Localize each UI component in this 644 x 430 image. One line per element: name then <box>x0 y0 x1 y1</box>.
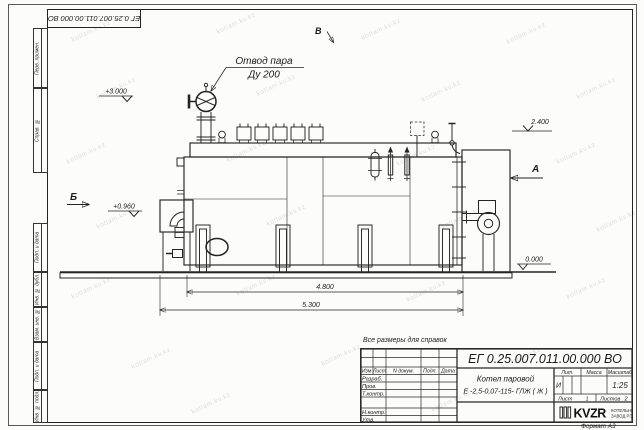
product-name-line1: Котел паровой <box>477 375 535 384</box>
scale-header: Масштаб <box>608 370 633 376</box>
dimensions: 4.800 5.300 <box>160 275 463 316</box>
elevation-ground: 0.000 <box>525 257 543 264</box>
level-instruments <box>368 147 410 181</box>
valve-box <box>255 124 269 144</box>
row-nkontr: Н.контр. <box>362 410 386 416</box>
lit-value: И <box>556 383 562 390</box>
side-cell-podp-data-1: Подп. и дата <box>33 223 48 272</box>
elevation-burner: +0.960 <box>113 204 135 211</box>
title-block: Изм Лист N докум. Подп. Дата Разраб. Про… <box>360 348 633 423</box>
elevation-mid: 2.400 <box>530 119 549 126</box>
product-name-line2: Е -2,5-0,07-115- ГЛЖ ( Ж ) <box>463 389 547 396</box>
rotated-doc-number: ЕГ 0.25.007.011.00.000 ВО <box>48 14 140 23</box>
front-wall-fittings <box>166 158 184 258</box>
row-razrab: Разраб. <box>362 376 382 382</box>
dim-body-length: 4.800 <box>316 284 334 291</box>
logo-text: KVZR <box>574 407 607 421</box>
sheet-label: Лист <box>557 396 573 402</box>
side-cell-perv-primen: Перв. примен. <box>33 28 48 88</box>
dim-overall-length: 5.300 <box>302 302 320 309</box>
burner-box <box>160 200 193 271</box>
elevation-top: +3.000 <box>105 89 127 96</box>
view-label-b: Б <box>70 192 77 203</box>
boiler-body <box>184 143 462 265</box>
row-prov: Пров. <box>362 384 377 390</box>
format-label: Формат А3 <box>581 423 615 430</box>
sheets-label: Листов <box>599 396 620 402</box>
elevation-marks: +3.000 2.400 +0.960 0.000 <box>99 89 552 270</box>
valve-box <box>273 124 287 144</box>
col-podp: Подп. <box>423 369 437 375</box>
logo-subtext-1: КОТЕЛЬНЫЙ <box>611 408 633 413</box>
mass-header: Масса <box>586 370 601 376</box>
top-right-fittings <box>411 122 461 158</box>
valve-box <box>291 124 305 144</box>
col-izm: Изм <box>362 369 372 375</box>
callout-line1: Отвод пара <box>235 56 293 67</box>
valve-box <box>309 124 323 144</box>
drawing-sheet: kotlam.kv.kzkotlam.kv.kzkotlam.kv.kzkotl… <box>0 0 644 430</box>
side-cell-podp-data-2: Подп. и дата <box>33 342 48 390</box>
side-cell-vzam-inv: Взам. инв. № <box>33 307 48 342</box>
valve-box <box>237 124 251 144</box>
doc-number: ЕГ 0.25.007.011.00.000 ВО <box>468 352 622 366</box>
side-cell-inv-dubl: Инв. № дубл. <box>33 272 48 307</box>
view-label-v: В <box>315 26 322 36</box>
side-cell-sprav-no: Справ. № <box>33 88 48 173</box>
row-tkontr: Т.контр. <box>362 391 385 397</box>
scale-value: 1:25 <box>612 381 628 390</box>
pump-unit <box>462 201 500 272</box>
company-logo: KVZR КОТЕЛЬНЫЙ ЗАВОД РЭП <box>560 407 633 421</box>
row-utv: Утв. <box>361 417 375 423</box>
lit-header: Лит. <box>560 370 573 376</box>
sheet-value: 1 <box>585 396 588 402</box>
view-arrows: Б А В <box>67 26 543 205</box>
manhole-oval <box>206 239 228 256</box>
col-data: Дата <box>440 369 455 375</box>
side-cell-inv-podl: Инв. № подл. <box>33 390 48 423</box>
col-list: Лист <box>372 369 387 375</box>
flanged-port-left <box>218 131 227 143</box>
ground-line <box>60 272 556 278</box>
view-label-a: А <box>531 164 539 175</box>
rear-flue-box <box>452 150 510 272</box>
rotated-doc-number-stamp: ЕГ 0.25.007.011.00.000 ВО <box>47 9 141 28</box>
steam-outlet-valve <box>189 83 216 143</box>
callout-line2: Ду 200 <box>247 70 280 81</box>
col-docum: N докум. <box>393 369 414 375</box>
logo-subtext-2: ЗАВОД РЭП <box>611 414 633 419</box>
reference-note: Все размеры для справок <box>363 337 447 344</box>
safety-valve-row <box>237 124 323 144</box>
flanged-port-right <box>431 131 440 143</box>
steam-outlet-callout: Отвод пара Ду 200 <box>211 56 304 91</box>
